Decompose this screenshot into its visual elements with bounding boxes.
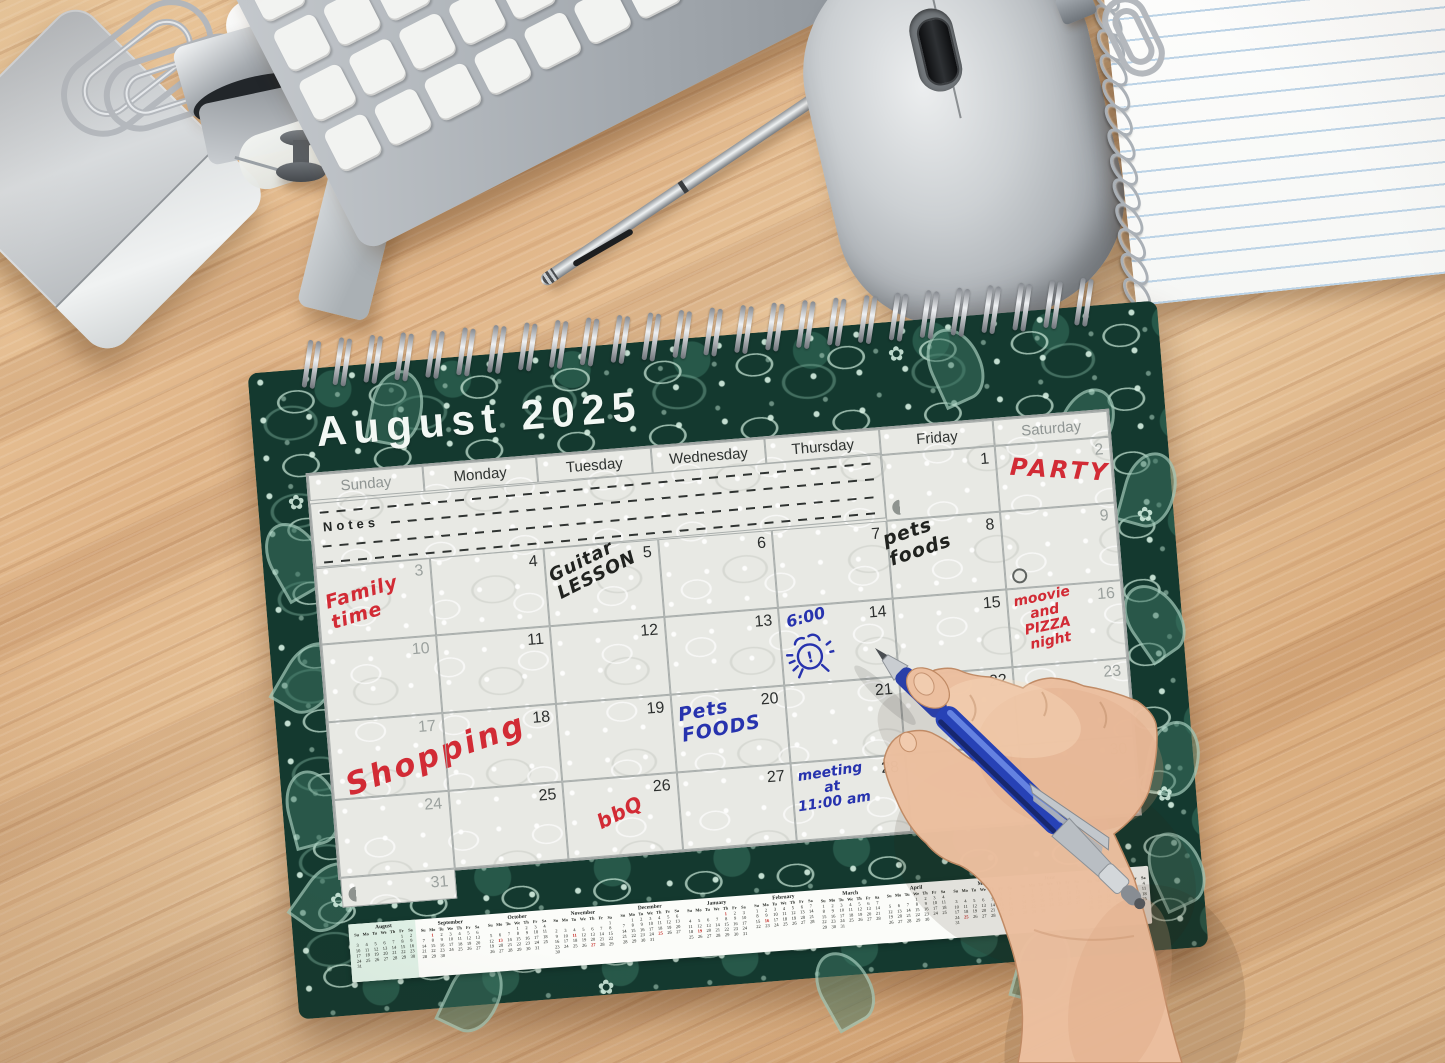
mini-month-grid: SuMoTuWeThFrSa12345678910111213141516171… [685,904,751,940]
mini-calendar-body: NovemberSuMoTuWeThFrSa123456789101112131… [551,908,617,955]
handwritten-note: PetsFOODS [676,691,762,746]
mini-day: 28 [713,932,722,938]
mini-calendar-september: SeptemberSuMoTuWeThFrSa12345678910111213… [415,915,486,978]
mini-calendar-august: AugustSuMoTuWeThFrSa12345678910111213141… [348,920,419,983]
mini-day: 29 [429,953,438,959]
day-cell-10: 10 [321,635,441,722]
day-cell-2: 2PARTY [995,437,1114,512]
flower-icon: ✿ [287,489,306,515]
day-number: 25 [538,786,557,805]
mini-calendar-body: OctoberSuMoTuWeThFrSa1234567891011121314… [485,911,552,954]
mini-day: 26 [789,920,798,926]
mini-day: 30 [553,949,562,955]
flower-icon: ✿ [597,974,616,1000]
day-number: 3 [414,562,424,581]
moon-phase-icon [348,886,364,902]
mini-day: 27 [705,933,714,939]
day-number: 27 [766,768,785,787]
mini-day: 27 [674,929,683,935]
mini-day: 25 [687,934,696,940]
mini-day: 27 [496,948,505,954]
mini-month-grid: SuMoTuWeThFrSa12345678910111213141516171… [618,908,685,945]
keyboard-key [347,37,409,99]
day-number: 11 [527,631,545,650]
day-cell-24: 24 [334,791,454,878]
day-cell-8: 8petsfoods [886,512,1006,599]
day-number: 9 [1099,507,1109,526]
day-cell-7: 7 [772,521,892,608]
mini-day: 30 [438,952,447,958]
mini-day: 27 [381,956,390,962]
moon-phase-icon [1012,568,1028,584]
handwritten-note: PARTY [1010,455,1111,487]
handwritten-note: bbQ [594,792,647,833]
mini-calendar-body: AugustSuMoTuWeThFrSa12345678910111213141… [351,920,419,969]
mini-day: 26 [487,948,496,954]
day-number: 20 [760,690,779,709]
keyboard-key [572,0,634,47]
mini-calendar-body: DecemberSuMoTuWeThFrSa123456789101112131… [618,901,685,944]
mini-day: 25 [456,946,465,952]
mini-day: 24 [771,922,780,928]
day-cell-6: 6 [658,530,778,617]
mini-day: 22 [754,924,763,930]
hand-holding-pen [820,600,1445,1063]
day-number: 31 [430,873,449,892]
day-cell-11: 11 [436,626,556,713]
keyboard-key [447,0,509,48]
mini-calendar-december: DecemberSuMoTuWeThFrSa123456789101112131… [615,900,686,963]
keyboard-key [297,62,359,124]
keyboard-key [397,11,459,73]
mini-day: 30 [408,953,417,959]
moon-phase-icon [892,499,908,515]
mini-day: 28 [420,954,429,960]
keyboard-key [422,61,484,123]
mini-day: 27 [474,945,483,951]
mini-day: 29 [399,954,408,960]
mini-day: 23 [763,923,772,929]
handwritten-note: Familytime [323,572,406,633]
mini-calendar-november: NovemberSuMoTuWeThFrSa123456789101112131… [548,905,619,968]
day-cell-12: 12 [550,617,670,704]
mouse-scroll-wheel [914,15,962,89]
day-cell-4: 4 [429,548,549,635]
mini-day: 26 [372,956,381,962]
push-pin-base [276,162,326,182]
keyboard-key [271,12,333,74]
mini-day: 30 [731,931,740,937]
mini-month-grid: SuMoTuWeThFrSa12345678910111213141516171… [552,914,618,954]
mini-day: 25 [541,939,550,945]
mini-day: 29 [514,946,523,952]
day-cell-26: 26bbQ [562,772,682,859]
mini-day: 26 [696,933,705,939]
day-number: 5 [642,544,652,563]
mini-month-grid: SuMoTuWeThFrSa12345678910111213141516171… [418,924,484,959]
day-number: 13 [754,612,773,631]
day-cell-25: 25 [448,782,568,869]
day-number: 18 [532,708,551,727]
mini-day: 25 [780,921,789,927]
day-number: 12 [640,622,659,641]
keyboard-key [372,87,434,149]
mini-month-grid: SuMoTuWeThFrSa12345678910111213141516171… [485,918,551,955]
mini-day: 31 [648,936,657,942]
day-cell-19: 19 [556,695,676,782]
day-number: 7 [871,525,881,544]
day-number: 17 [418,718,437,737]
desk-scene: ✿✿✿✿✿✿ August 2025 SundayMondayTuesdayWe… [0,0,1445,1063]
day-cell-27: 27 [677,763,797,850]
mini-month-grid: SuMoTuWeThFrSa12345678910111213141516171… [752,898,818,930]
mini-day: 29 [722,932,731,938]
mini-calendar-january: JanuarySuMoTuWeThFrSa1234567891011121314… [681,895,752,958]
mini-day: 31 [740,930,749,936]
mini-calendar-body: FebruarySuMoTuWeThFrSa123456789101112131… [751,891,818,929]
mini-month-grid: SuMoTuWeThFrSa12345678910111213141516171… [352,927,419,970]
mini-day: 28 [505,947,514,953]
mini-calendar-february: FebruarySuMoTuWeThFrSa123456789101112131… [748,890,819,953]
day-number: 6 [756,535,766,554]
mini-day: 25 [363,957,372,963]
day-number: 19 [646,699,665,718]
mini-day: 24 [447,947,456,953]
mini-day: 28 [807,919,816,925]
flower-icon: ✿ [1136,501,1155,527]
day-cell-13: 13 [664,608,784,695]
day-cell-18: 18 [442,704,562,791]
keyboard-key [472,36,534,98]
day-cell-9: 9 [1000,502,1120,589]
notes-label: Notes [322,514,379,534]
keyboard-key [321,0,383,49]
keyboard-key [322,112,384,174]
mini-day: 30 [523,945,532,951]
day-number: 26 [652,777,671,796]
mini-day: 29 [607,941,616,947]
day-number: 8 [985,516,995,535]
day-cell-3: 3Familytime [315,558,435,645]
mini-calendar-body: JanuarySuMoTuWeThFrSa1234567891011121314… [684,898,750,940]
mini-day: 31 [355,963,364,969]
mouse-wheel-well [905,4,967,96]
flower-icon: ✿ [887,341,906,367]
keyboard-key [622,0,684,21]
day-number: 10 [411,640,430,659]
mini-day: 31 [532,945,541,951]
day-number: 24 [424,795,443,814]
day-cell-5: 5GuitarLESSON [544,539,664,626]
day-number: 1 [980,450,990,469]
mini-day: 28 [390,955,399,961]
keyboard-key [522,10,584,72]
mini-calendar-body: SeptemberSuMoTuWeThFrSa12345678910111213… [418,917,484,959]
mini-day: 27 [798,919,807,925]
pen-band [678,180,689,194]
calendar-month-title: August 2025 [314,382,644,456]
day-cell-17: 17Shopping [328,713,448,800]
day-cell-20: 20PetsFOODS [670,686,790,773]
svg-text:!: ! [805,648,816,667]
mini-day: 26 [465,946,474,952]
mini-calendar-october: OctoberSuMoTuWeThFrSa1234567891011121314… [481,910,552,973]
day-number: 4 [528,553,538,572]
